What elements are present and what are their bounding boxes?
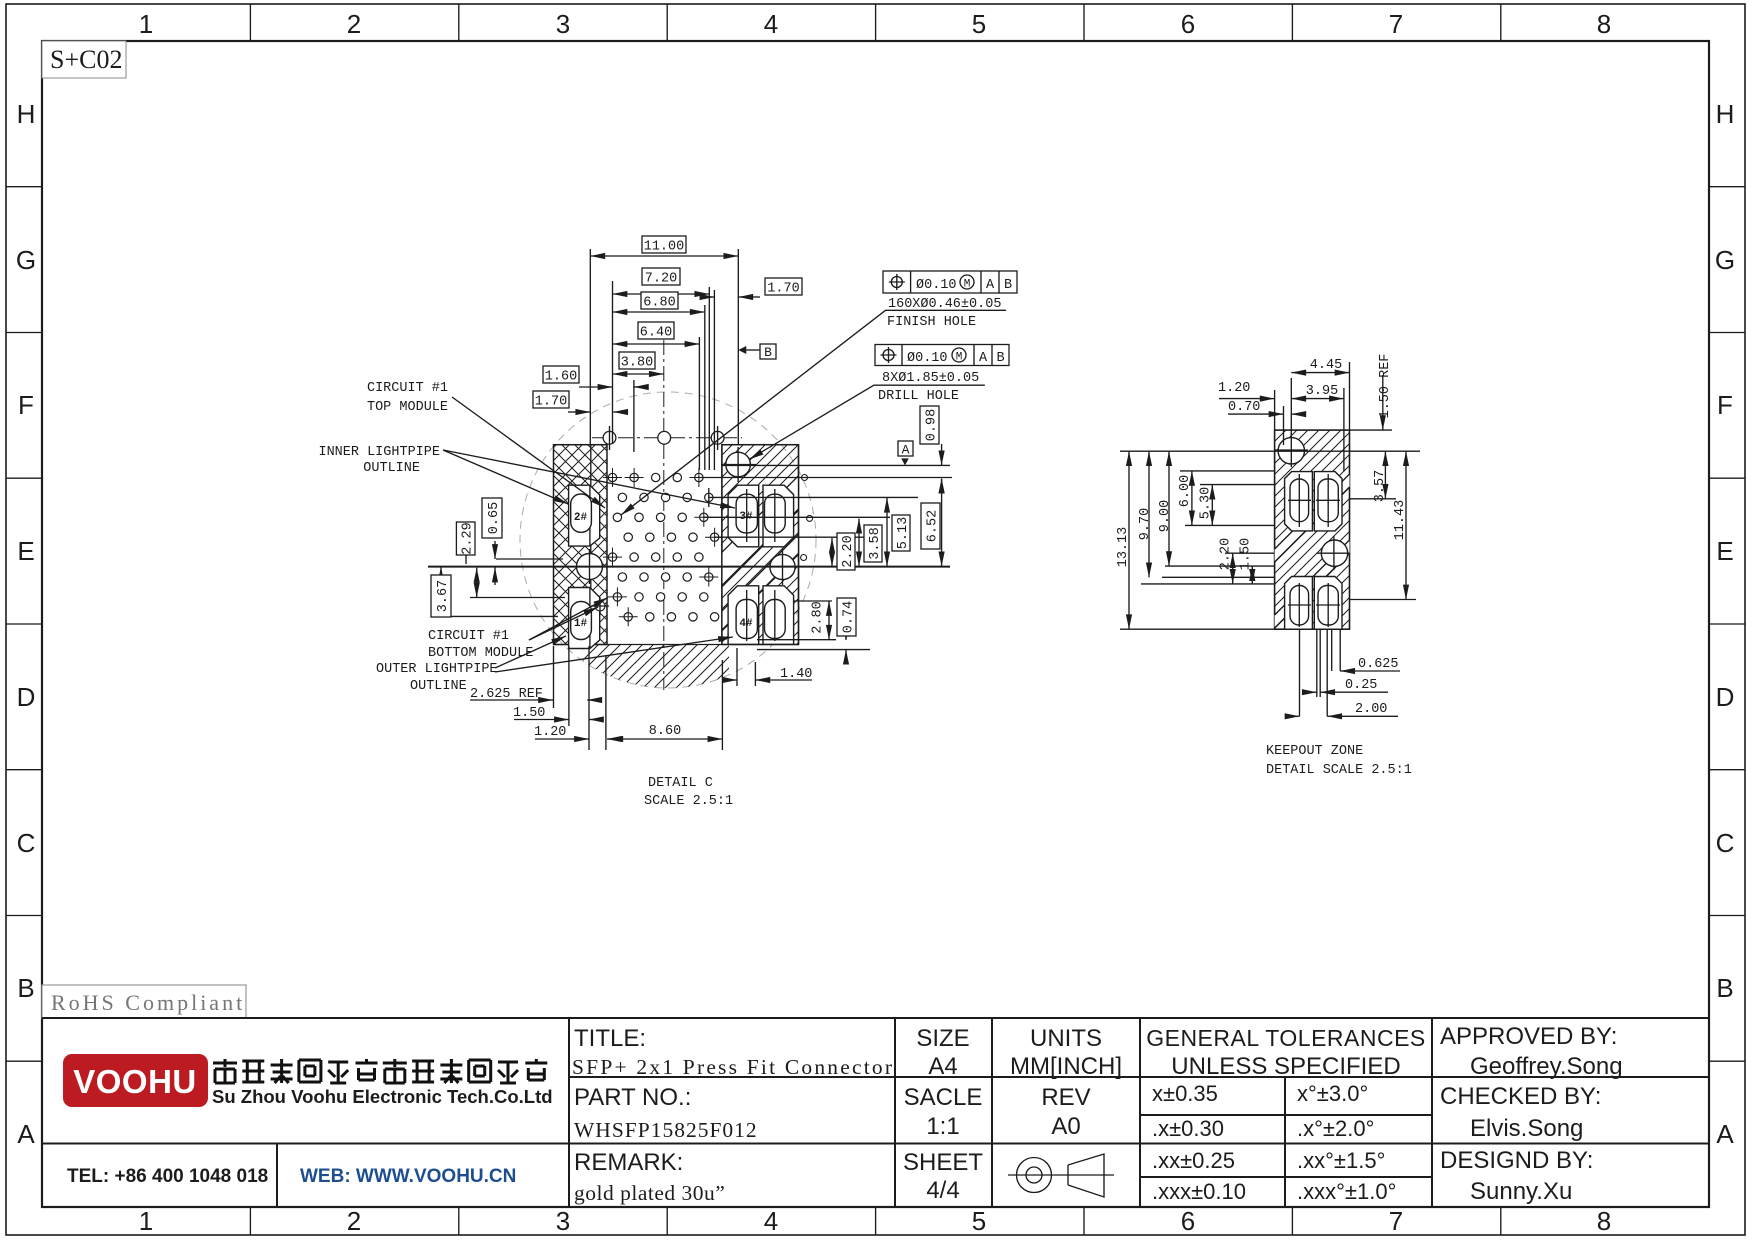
svg-text:4.45: 4.45 <box>1310 358 1342 373</box>
svg-text:0.70: 0.70 <box>1228 400 1260 415</box>
svg-text:6: 6 <box>1181 1206 1195 1236</box>
svg-text:WHSFP15825F012: WHSFP15825F012 <box>574 1118 758 1142</box>
svg-text:7: 7 <box>1389 9 1403 39</box>
svg-text:SHEET: SHEET <box>903 1149 983 1176</box>
svg-text:Geoffrey.Song: Geoffrey.Song <box>1470 1053 1623 1080</box>
svg-text:Su Zhou Voohu Electronic Tech.: Su Zhou Voohu Electronic Tech.Co.Ltd <box>212 1086 553 1107</box>
svg-text:SCALE 2.5:1: SCALE 2.5:1 <box>644 794 733 809</box>
svg-text:APPROVED BY:: APPROVED BY: <box>1440 1023 1617 1050</box>
svg-text:.xxx±0.10: .xxx±0.10 <box>1152 1179 1246 1204</box>
svg-text:BOTTOM MODULE: BOTTOM MODULE <box>428 646 533 661</box>
svg-text:7: 7 <box>1389 1206 1403 1236</box>
svg-text:6.00: 6.00 <box>1178 475 1193 507</box>
svg-text:x±0.35: x±0.35 <box>1152 1081 1218 1106</box>
svg-text:4: 4 <box>764 1206 778 1236</box>
svg-text:7.20: 7.20 <box>645 272 677 287</box>
svg-text:1.20: 1.20 <box>534 725 566 740</box>
svg-text:0.625: 0.625 <box>1358 657 1399 672</box>
svg-text:2: 2 <box>347 9 361 39</box>
svg-text:13.13: 13.13 <box>1116 527 1131 568</box>
svg-text:3.57: 3.57 <box>1373 470 1388 502</box>
svg-text:2.20: 2.20 <box>841 535 856 567</box>
svg-text:A: A <box>17 1119 35 1149</box>
svg-text:.xx°±1.5°: .xx°±1.5° <box>1297 1148 1385 1173</box>
svg-text:E: E <box>17 536 34 566</box>
svg-text:KEEPOUT ZONE: KEEPOUT ZONE <box>1266 744 1363 759</box>
svg-text:OUTLINE: OUTLINE <box>363 461 420 476</box>
svg-text:B: B <box>1716 973 1733 1003</box>
svg-text:x°±3.0°: x°±3.0° <box>1297 1081 1368 1106</box>
svg-text:DETAIL C: DETAIL C <box>648 776 713 791</box>
svg-text:1#: 1# <box>574 618 588 630</box>
svg-text:OUTER LIGHTPIPE: OUTER LIGHTPIPE <box>376 662 498 677</box>
svg-text:1: 1 <box>139 1206 153 1236</box>
svg-text:REV: REV <box>1041 1084 1090 1111</box>
svg-text:PART NO.:: PART NO.: <box>574 1084 691 1111</box>
svg-text:6.80: 6.80 <box>643 296 675 311</box>
svg-text:M: M <box>964 279 971 291</box>
svg-text:gold plated 30u”: gold plated 30u” <box>574 1181 725 1205</box>
svg-text:0.98: 0.98 <box>925 409 940 441</box>
svg-text:VOOHU: VOOHU <box>73 1063 197 1100</box>
svg-text:0.25: 0.25 <box>1345 678 1377 693</box>
svg-text:0.74: 0.74 <box>842 601 857 633</box>
svg-text:A: A <box>986 278 995 293</box>
svg-text:5: 5 <box>972 9 986 39</box>
svg-text:1.40: 1.40 <box>780 667 812 682</box>
svg-text:DRILL HOLE: DRILL HOLE <box>878 389 959 404</box>
svg-text:3.80: 3.80 <box>621 356 653 371</box>
svg-text:CIRCUIT #1: CIRCUIT #1 <box>428 629 509 644</box>
svg-text:1.50 REF: 1.50 REF <box>1378 354 1393 419</box>
svg-text:F: F <box>1717 390 1733 420</box>
svg-text:3: 3 <box>556 9 570 39</box>
svg-text:SIZE: SIZE <box>916 1025 969 1052</box>
svg-text:CIRCUIT #1: CIRCUIT #1 <box>367 381 448 396</box>
svg-text:A: A <box>979 351 988 366</box>
svg-text:2.20: 2.20 <box>1219 538 1234 570</box>
svg-text:.x±0.30: .x±0.30 <box>1152 1116 1224 1141</box>
svg-text:.xxx°±1.0°: .xxx°±1.0° <box>1297 1179 1396 1204</box>
svg-text:D: D <box>1716 682 1735 712</box>
svg-text:F: F <box>18 390 34 420</box>
svg-text:FINISH HOLE: FINISH HOLE <box>887 315 976 330</box>
svg-text:2#: 2# <box>574 512 588 524</box>
svg-text:Elvis.Song: Elvis.Song <box>1470 1115 1583 1142</box>
svg-text:REMARK:: REMARK: <box>574 1149 683 1176</box>
svg-text:A: A <box>1716 1119 1734 1149</box>
svg-text:0.65: 0.65 <box>487 502 502 534</box>
svg-text:B: B <box>1004 278 1012 293</box>
svg-text:S+C02: S+C02 <box>50 45 122 74</box>
svg-text:3.95: 3.95 <box>1306 384 1338 399</box>
svg-text:INNER LIGHTPIPE: INNER LIGHTPIPE <box>318 445 440 460</box>
svg-text:SFP+ 2x1 Press Fit Connector: SFP+ 2x1 Press Fit Connector <box>572 1055 894 1079</box>
svg-text:8: 8 <box>1597 9 1611 39</box>
svg-text:A0: A0 <box>1051 1113 1080 1140</box>
svg-text:8XØ1.85±0.05: 8XØ1.85±0.05 <box>882 371 979 386</box>
svg-text:5: 5 <box>972 1206 986 1236</box>
svg-text:A4: A4 <box>928 1053 957 1080</box>
svg-text:8: 8 <box>1597 1206 1611 1236</box>
svg-text:9.00: 9.00 <box>1158 500 1173 532</box>
svg-text:1.50: 1.50 <box>513 706 545 721</box>
svg-text:.x°±2.0°: .x°±2.0° <box>1297 1116 1374 1141</box>
svg-text:.xx±0.25: .xx±0.25 <box>1152 1148 1235 1173</box>
svg-text:Ø0.10: Ø0.10 <box>907 351 948 366</box>
svg-text:11.43: 11.43 <box>1393 500 1408 541</box>
svg-text:OUTLINE: OUTLINE <box>410 679 467 694</box>
svg-text:UNITS: UNITS <box>1030 1025 1102 1052</box>
svg-text:2: 2 <box>347 1206 361 1236</box>
svg-text:1.60: 1.60 <box>545 370 577 385</box>
svg-text:5.30: 5.30 <box>1199 487 1214 519</box>
svg-text:MM[INCH]: MM[INCH] <box>1010 1053 1122 1080</box>
svg-text:1.70: 1.70 <box>535 395 567 410</box>
svg-text:B: B <box>17 973 34 1003</box>
svg-text:2.80: 2.80 <box>811 601 826 633</box>
svg-text:CHECKED BY:: CHECKED BY: <box>1440 1083 1601 1110</box>
svg-text:3.67: 3.67 <box>436 580 451 612</box>
svg-text:TITLE:: TITLE: <box>574 1025 646 1052</box>
svg-text:WEB: WWW.VOOHU.CN: WEB: WWW.VOOHU.CN <box>300 1166 516 1187</box>
svg-text:6: 6 <box>1181 9 1195 39</box>
svg-text:G: G <box>1715 245 1735 275</box>
svg-text:B: B <box>764 345 772 360</box>
svg-text:DESIGND BY:: DESIGND BY: <box>1440 1147 1593 1174</box>
svg-text:E: E <box>1716 536 1733 566</box>
svg-text:2.29: 2.29 <box>461 522 476 554</box>
svg-text:1:1: 1:1 <box>926 1113 959 1140</box>
svg-text:H: H <box>1716 99 1735 129</box>
svg-text:C: C <box>1716 828 1735 858</box>
svg-text:4#: 4# <box>739 618 753 630</box>
svg-text:2.625 REF: 2.625 REF <box>470 687 543 702</box>
svg-text:1.50: 1.50 <box>1239 538 1254 570</box>
svg-text:4/4: 4/4 <box>926 1177 959 1204</box>
svg-text:1: 1 <box>139 9 153 39</box>
svg-text:TEL: +86 400 1048 018: TEL: +86 400 1048 018 <box>67 1166 268 1187</box>
svg-text:Ø0.10: Ø0.10 <box>916 278 957 293</box>
svg-text:5.13: 5.13 <box>896 517 911 549</box>
svg-text:G: G <box>16 245 36 275</box>
svg-text:A: A <box>902 443 910 458</box>
svg-text:9.70: 9.70 <box>1138 508 1153 540</box>
svg-text:1.70: 1.70 <box>767 282 799 297</box>
svg-text:H: H <box>17 99 36 129</box>
svg-text:1.20: 1.20 <box>1218 381 1250 396</box>
svg-text:6.40: 6.40 <box>640 326 672 341</box>
svg-text:SACLE: SACLE <box>904 1084 983 1111</box>
svg-text:B: B <box>996 351 1004 366</box>
svg-text:DETAIL SCALE 2.5:1: DETAIL SCALE 2.5:1 <box>1266 763 1412 778</box>
svg-text:GENERAL TOLERANCES: GENERAL TOLERANCES <box>1146 1025 1426 1051</box>
svg-text:M: M <box>956 352 963 364</box>
svg-text:D: D <box>17 682 36 712</box>
svg-text:RoHS Compliant: RoHS Compliant <box>51 990 245 1015</box>
svg-text:Sunny.Xu: Sunny.Xu <box>1470 1178 1572 1205</box>
svg-text:UNLESS SPECIFIED: UNLESS SPECIFIED <box>1171 1053 1400 1080</box>
svg-text:4: 4 <box>764 9 778 39</box>
svg-text:2.00: 2.00 <box>1355 702 1387 717</box>
svg-text:TOP MODULE: TOP MODULE <box>367 400 448 415</box>
svg-text:8.60: 8.60 <box>649 724 681 739</box>
svg-text:C: C <box>17 828 36 858</box>
svg-text:3.58: 3.58 <box>868 527 883 559</box>
svg-text:6.52: 6.52 <box>926 510 941 542</box>
svg-text:3: 3 <box>556 1206 570 1236</box>
svg-text:11.00: 11.00 <box>644 240 685 255</box>
